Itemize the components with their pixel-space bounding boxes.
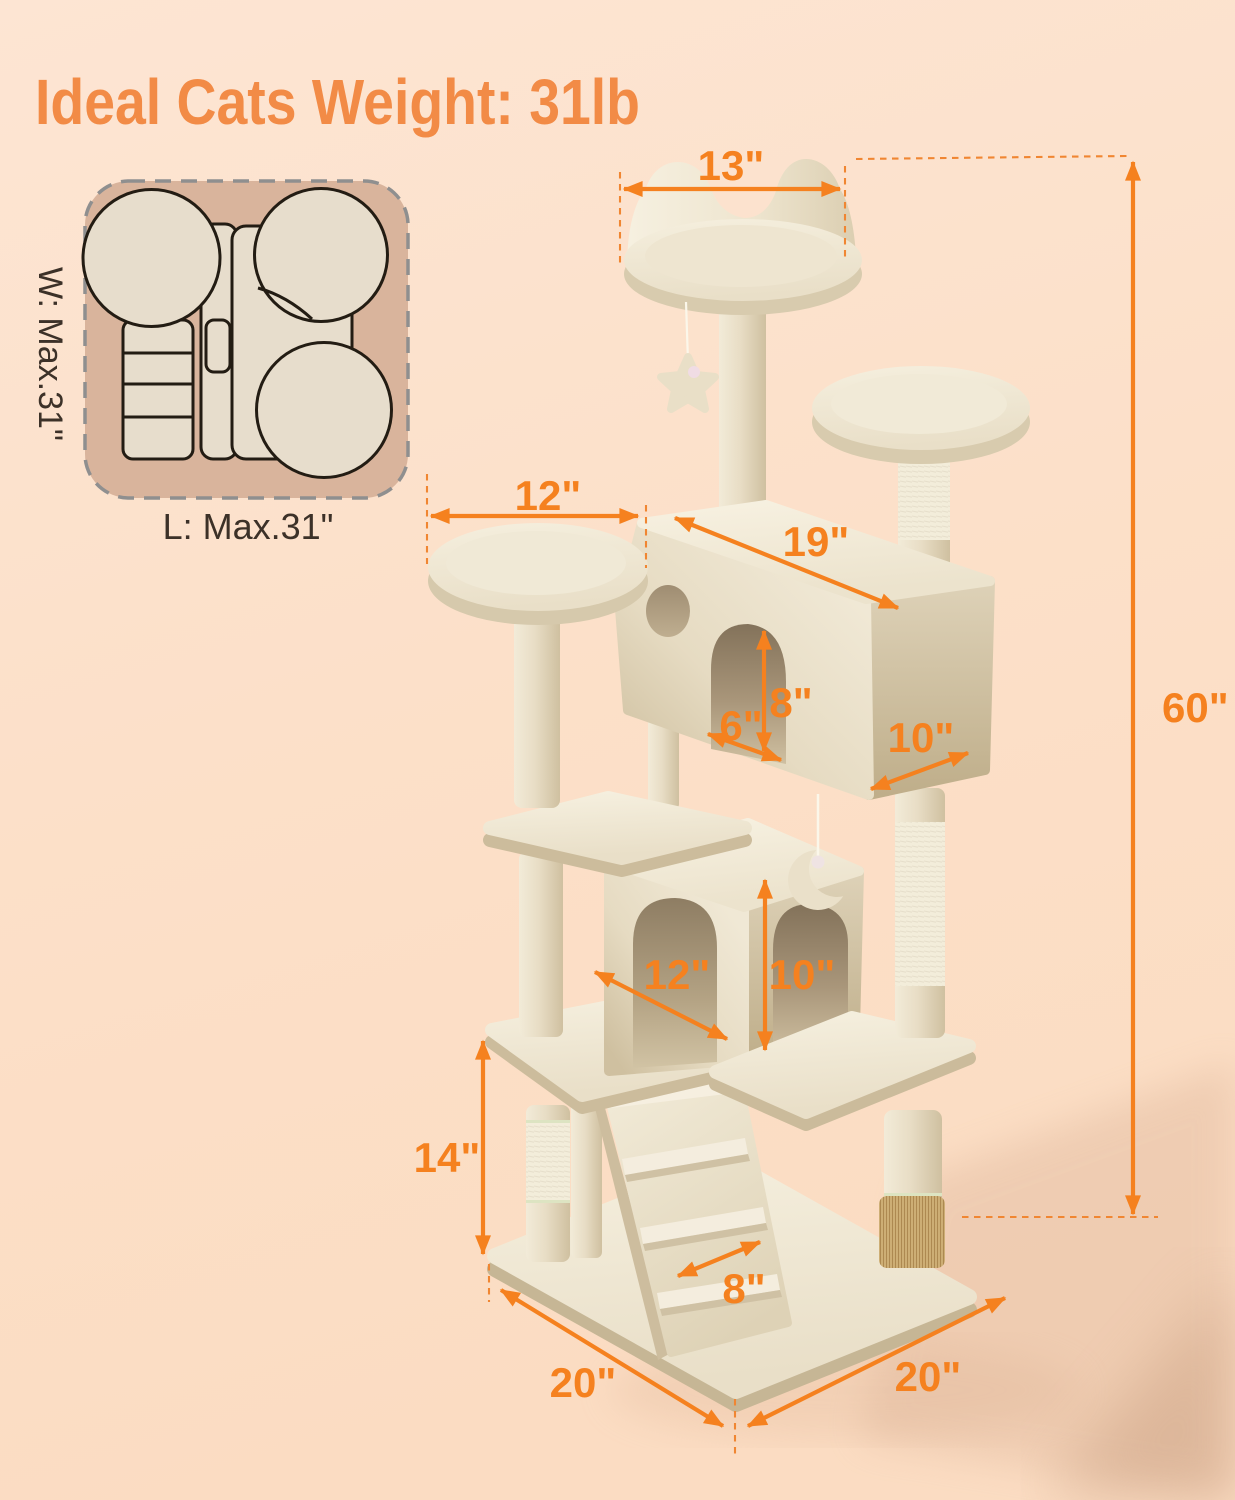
svg-text:12": 12": [515, 472, 582, 519]
svg-text:Ideal Cats Weight: 31lb: Ideal Cats Weight: 31lb: [35, 66, 640, 138]
svg-text:10": 10": [888, 714, 955, 761]
svg-text:8": 8": [769, 679, 812, 726]
svg-text:20": 20": [895, 1353, 962, 1400]
svg-text:60": 60": [1162, 684, 1229, 731]
svg-text:W: Max.31": W: Max.31": [31, 267, 69, 441]
svg-text:12": 12": [644, 951, 711, 998]
svg-text:10": 10": [769, 951, 836, 998]
svg-text:L: Max.31": L: Max.31": [163, 506, 334, 547]
svg-text:6": 6": [719, 702, 762, 749]
svg-text:14": 14": [414, 1134, 481, 1181]
svg-text:19": 19": [783, 518, 850, 565]
svg-text:20": 20": [550, 1359, 617, 1406]
svg-text:8": 8": [722, 1265, 765, 1312]
svg-text:13": 13": [698, 142, 765, 189]
